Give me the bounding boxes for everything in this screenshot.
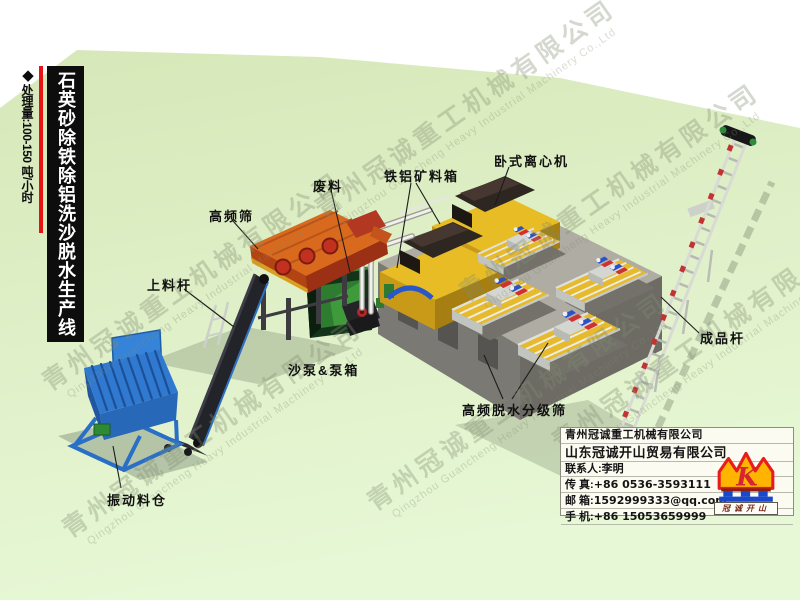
logo-mark: K xyxy=(735,462,759,491)
logo-text: 冠诚开山 xyxy=(714,502,778,515)
fax-label: 传 真: xyxy=(565,479,594,491)
label-horizontal-centrifuge: 卧式离心机 xyxy=(494,151,569,170)
fax-value: +86 0536-3593111 xyxy=(594,478,711,491)
email-value: 1592999333@qq.com xyxy=(594,494,727,507)
label-sand-pump-box: 沙泵&泵箱 xyxy=(288,360,359,379)
email-label: 邮 箱: xyxy=(565,495,594,507)
label-hf-dewater-screen: 高频脱水分级筛 xyxy=(462,400,567,419)
capacity-text: 处理量:100-150 吨/小时 xyxy=(20,84,34,203)
label-feed-conveyor: 上料杆 xyxy=(147,275,192,294)
label-vibrating-hopper: 振动料仓 xyxy=(107,490,167,509)
label-product-conveyor: 成品杆 xyxy=(700,328,745,347)
diagram-canvas: 青州冠诚重工机械有限公司 Qingzhou Guancheng Heavy In… xyxy=(0,0,800,600)
mobile-label: 手 机: xyxy=(565,511,594,523)
capacity-note: ◆处理量:100-150 吨/小时 xyxy=(18,66,36,246)
title-banner: 石英砂除铁除铝洗沙脱水生产线 xyxy=(47,66,84,342)
label-hf-screen: 高频筛 xyxy=(209,206,254,225)
company-name-1: 青州冠诚重工机械有限公司 xyxy=(561,428,793,444)
diamond-icon: ◆ xyxy=(19,66,36,84)
mobile-value: +86 15053659999 xyxy=(594,510,707,523)
label-fe-al-ore-box: 铁铝矿料箱 xyxy=(384,166,459,185)
label-waste: 废料 xyxy=(313,176,343,195)
info-card: 青州冠诚重工机械有限公司 山东冠诚开山贸易有限公司 联系人:李明 传 真:+86… xyxy=(560,427,794,516)
company-logo: K 冠诚开山 xyxy=(713,449,779,515)
red-accent-rule xyxy=(39,66,43,233)
crown-logo-icon: K xyxy=(713,449,779,503)
